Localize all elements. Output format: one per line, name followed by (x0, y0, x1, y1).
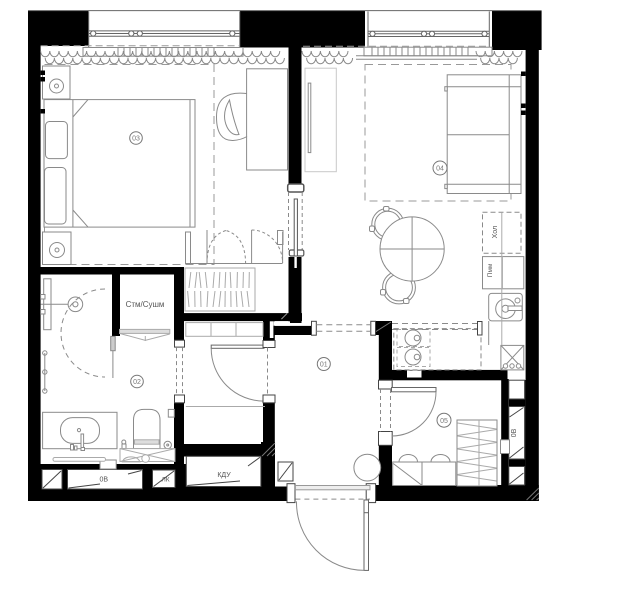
svg-text:02: 02 (133, 379, 141, 386)
svg-text:Пмм: Пмм (487, 263, 494, 277)
svg-text:Стм/Сушм: Стм/Сушм (126, 300, 165, 309)
svg-text:05: 05 (440, 418, 448, 425)
svg-text:ЛК: ЛК (161, 476, 169, 483)
svg-text:КДУ: КДУ (217, 472, 231, 479)
svg-text:0В: 0В (100, 477, 109, 484)
svg-text:04: 04 (436, 166, 444, 173)
svg-text:03: 03 (132, 136, 140, 143)
svg-text:Хол: Хол (492, 226, 499, 238)
svg-text:01: 01 (320, 362, 328, 369)
svg-text:0В: 0В (511, 428, 518, 437)
